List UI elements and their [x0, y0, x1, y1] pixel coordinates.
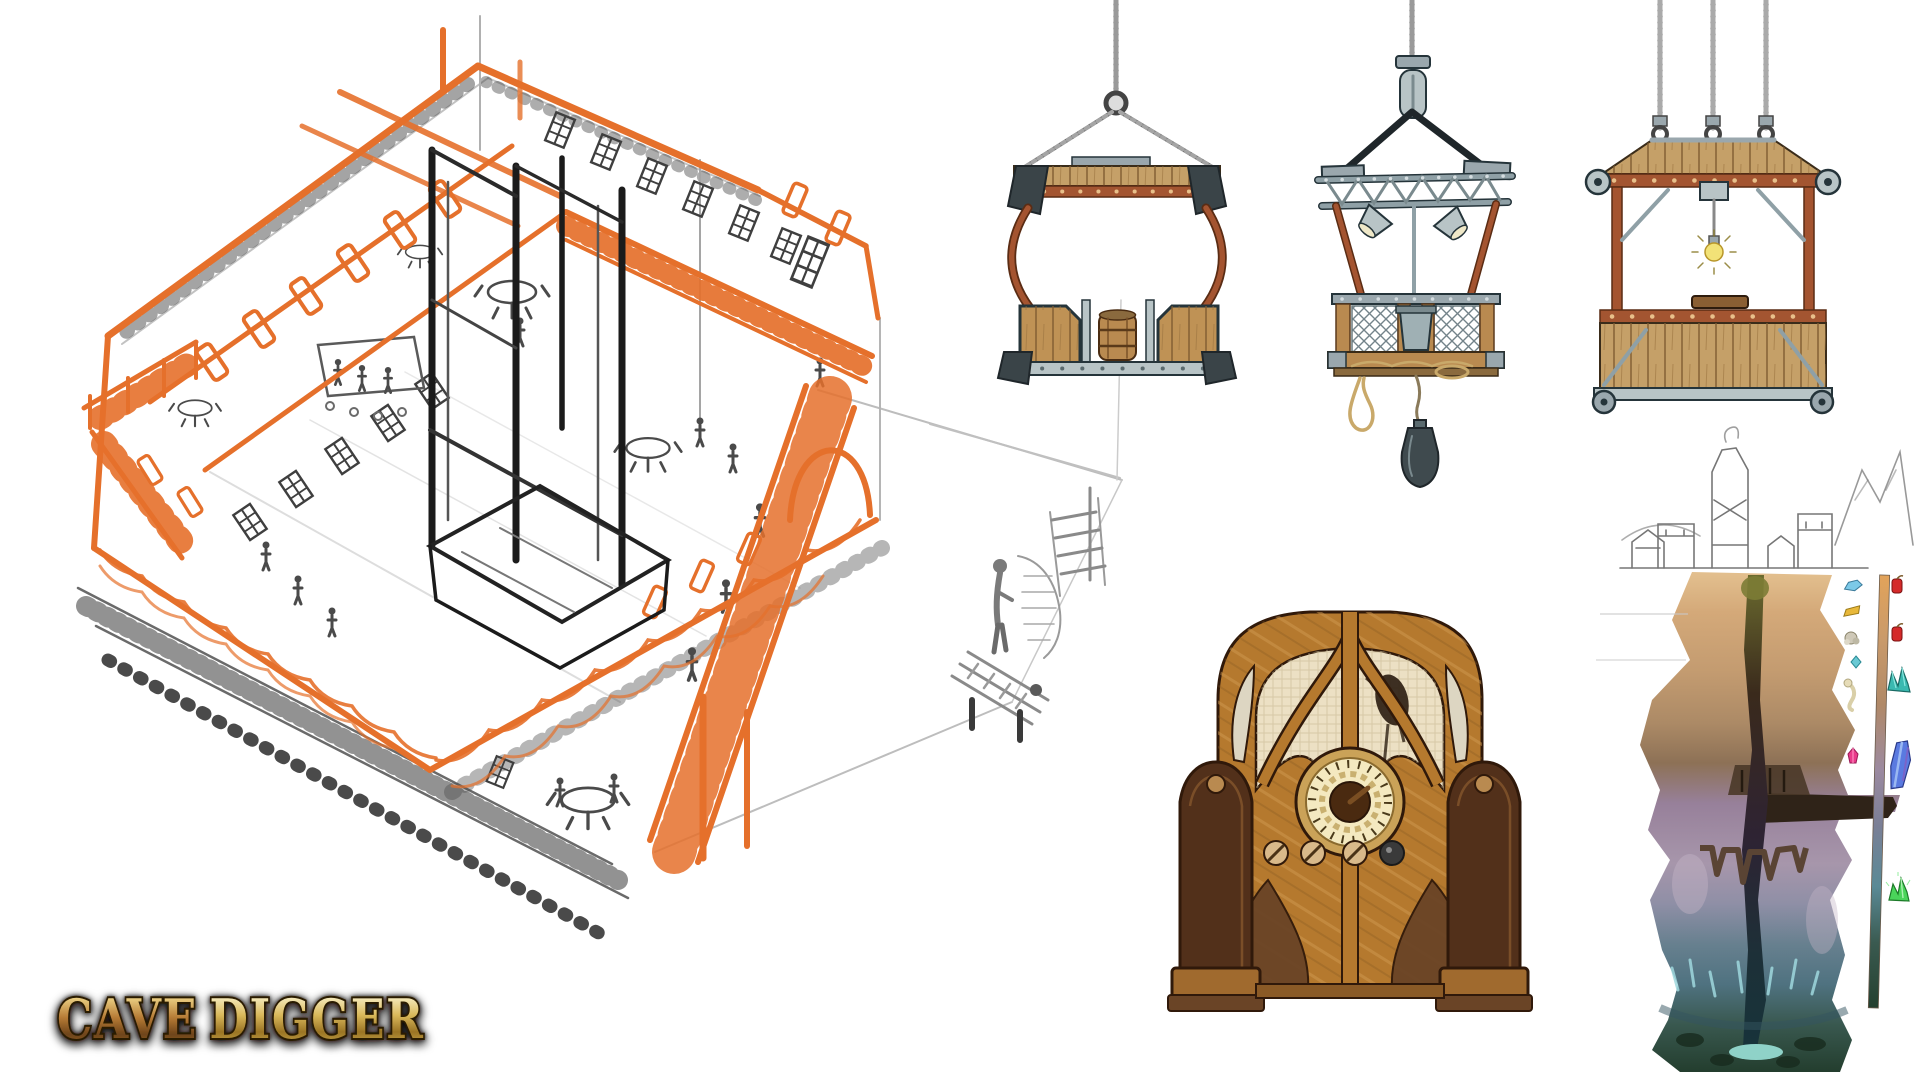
- dynamite-icon-2: [1892, 624, 1903, 641]
- saloon-orange-structure: [84, 30, 878, 862]
- elevator-concept-basket: [1318, 0, 1512, 487]
- game-logo: CAVEDIGGER: [57, 988, 425, 1051]
- dynamite-icon: [1892, 576, 1903, 593]
- rope-loop: [1350, 378, 1373, 430]
- green-crystal-icon: [1886, 872, 1910, 901]
- elevator-shaft-posts: [430, 150, 668, 668]
- glow-pool: [1729, 1044, 1783, 1060]
- light-bulb: [1692, 230, 1736, 274]
- saloon-pencil-details: [78, 16, 1122, 936]
- teal-crystal-cluster-icon: [1888, 668, 1910, 692]
- rope-eyelet: [1106, 93, 1126, 113]
- elevator-concept-cage: [998, 0, 1236, 384]
- logo-text: CAVEDIGGER: [57, 988, 425, 1051]
- barrel: [1099, 310, 1136, 360]
- work-lamp-right: [1434, 207, 1473, 245]
- radio-concept: [1168, 605, 1532, 1011]
- saloon-isometric-sketch: [78, 16, 1122, 936]
- concept-art-canvas: CAVEDIGGER: [0, 0, 1920, 1080]
- pink-gem-icon: [1848, 748, 1858, 763]
- radio-column-left: [1168, 762, 1264, 1011]
- tuning-dial: [1296, 748, 1404, 856]
- gold-bar-icon: [1842, 606, 1861, 617]
- concept-art-sheet: CAVEDIGGER: [0, 0, 1920, 1080]
- depth-legend: [1842, 575, 1914, 1008]
- blue-crystal-icon: [1886, 739, 1914, 792]
- silver-ore-icon: [1844, 632, 1860, 645]
- blue-gem-icon: [1843, 578, 1863, 594]
- bone-icon: [1844, 679, 1854, 710]
- cave-cross-section: [1596, 427, 1914, 1072]
- teal-gem-icon: [1851, 656, 1861, 668]
- counterweight: [1402, 420, 1439, 487]
- town-skyline-sketch: [1620, 427, 1913, 568]
- radio-column-right: [1436, 762, 1532, 1011]
- work-lamp-left: [1353, 205, 1392, 243]
- elevator-concept-platform: [1586, 0, 1840, 413]
